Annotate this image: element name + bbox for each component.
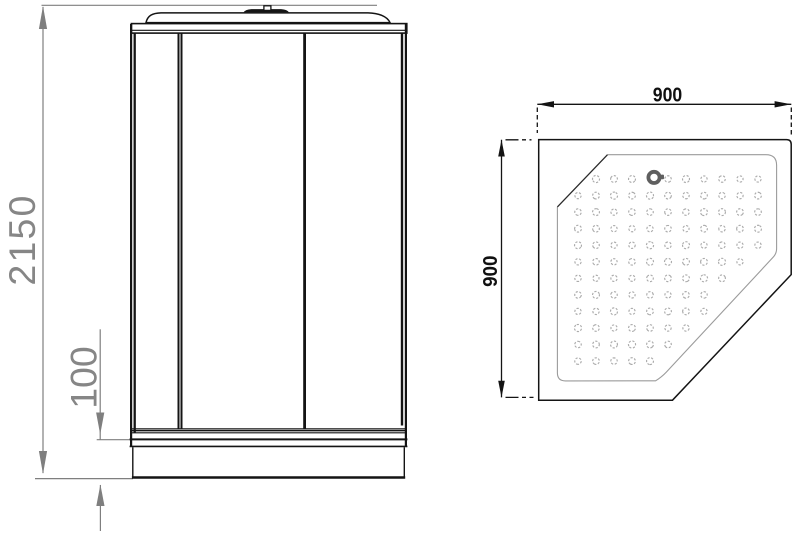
svg-text:100: 100 [62,346,104,409]
svg-text:900: 900 [653,84,682,107]
svg-text:2150: 2150 [1,193,43,285]
svg-text:900: 900 [479,256,502,287]
